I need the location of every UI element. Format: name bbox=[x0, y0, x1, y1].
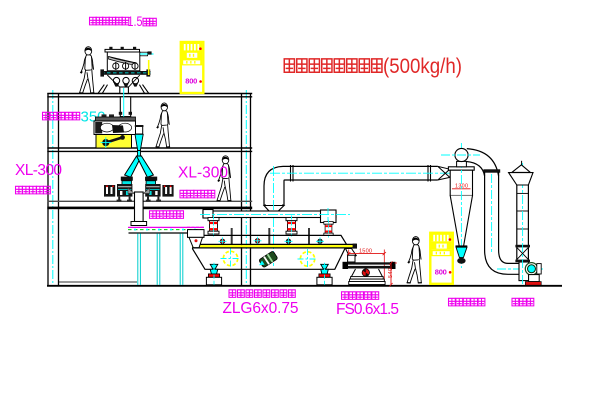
svg-text:XL-300: XL-300 bbox=[178, 165, 228, 182]
svg-text:(500kg/h): (500kg/h) bbox=[383, 55, 462, 78]
svg-text:1.5: 1.5 bbox=[128, 13, 143, 29]
svg-text:540: 540 bbox=[388, 268, 394, 278]
svg-text:FS0.6x1.5: FS0.6x1.5 bbox=[336, 301, 399, 318]
svg-text:XL-300: XL-300 bbox=[15, 162, 62, 179]
svg-text:ZLG6x0.75: ZLG6x0.75 bbox=[223, 300, 299, 317]
